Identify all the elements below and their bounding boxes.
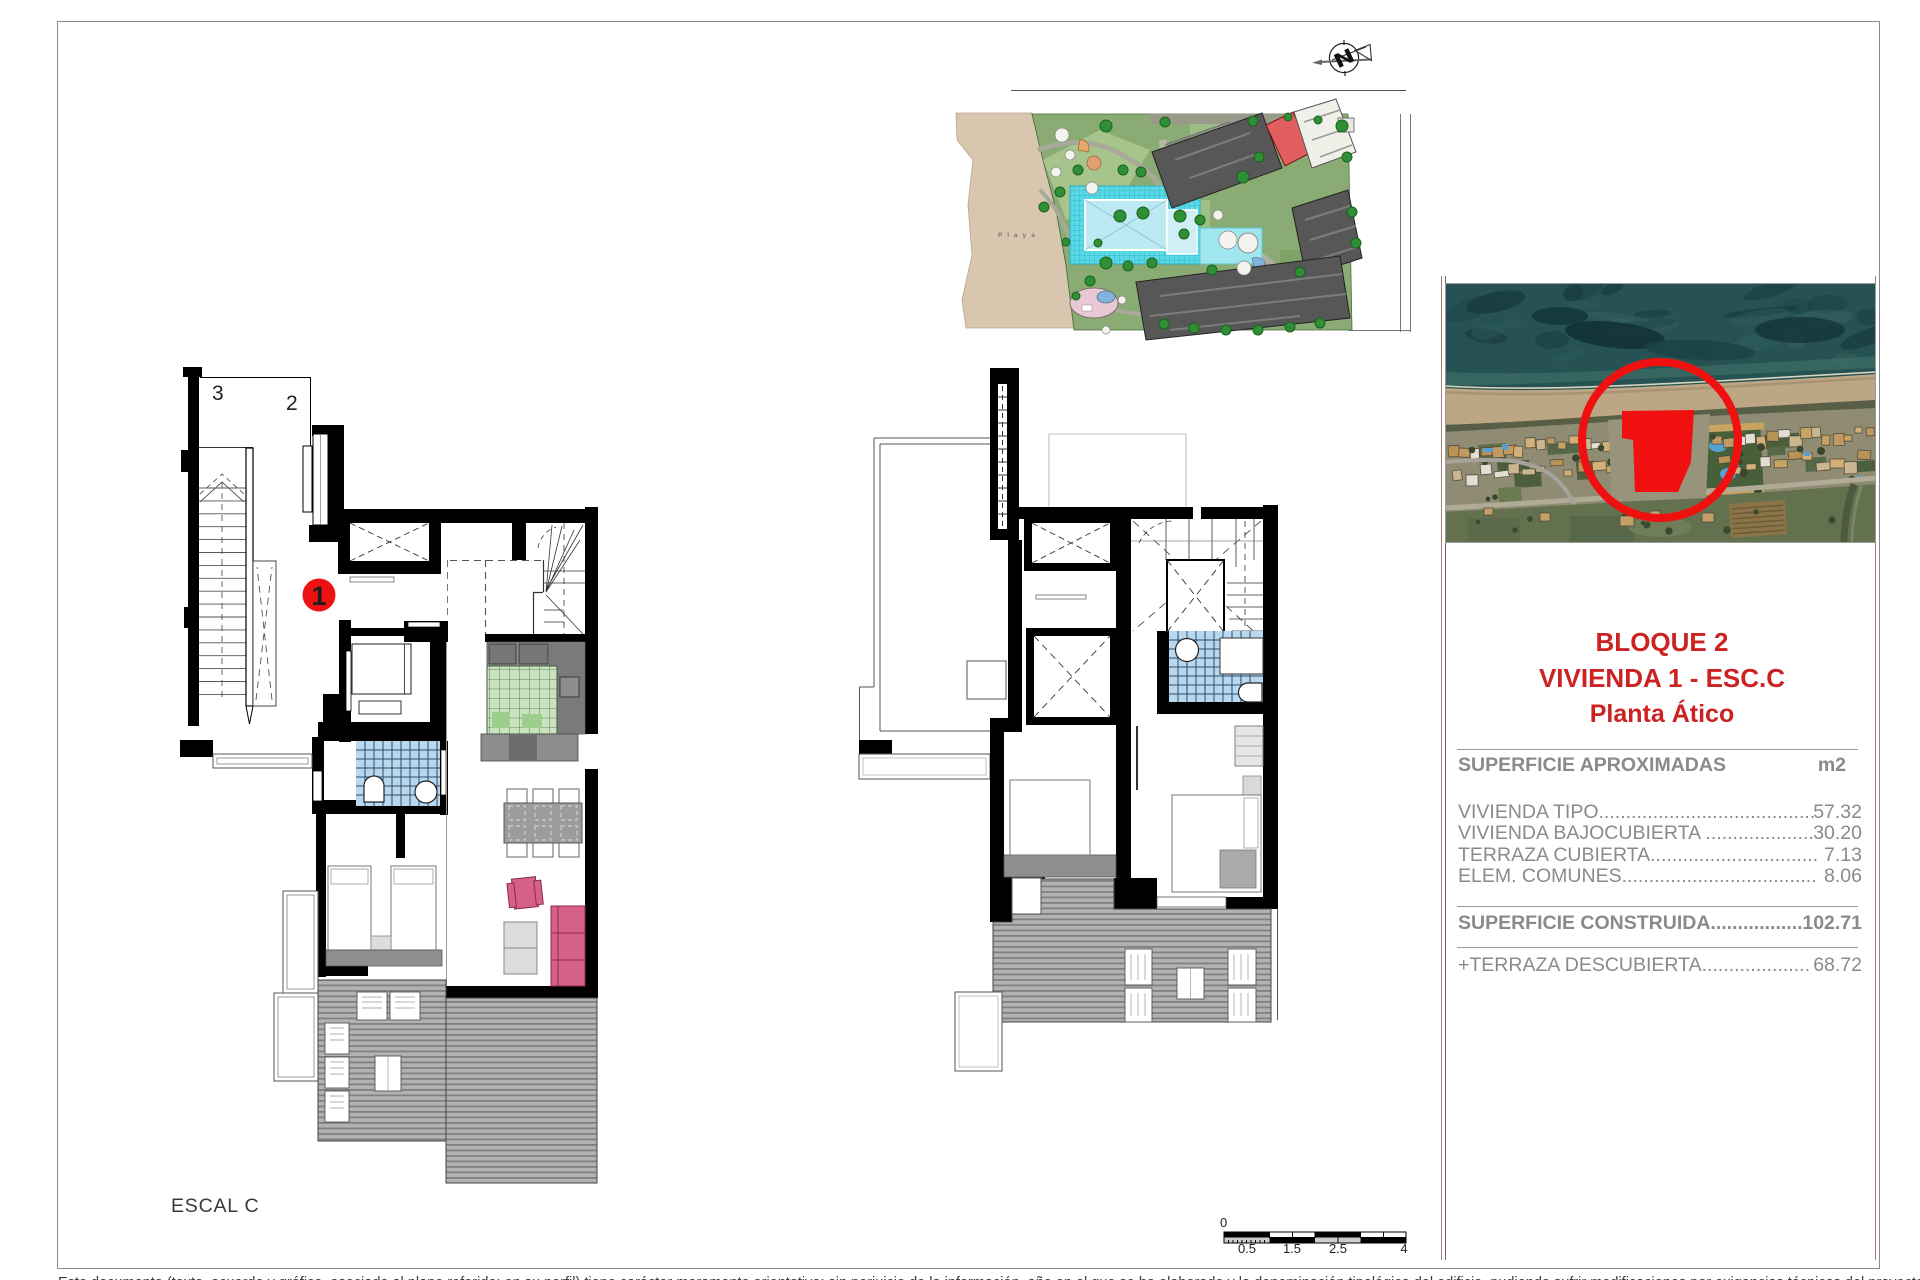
svg-text:2.5: 2.5 <box>1329 1241 1347 1256</box>
svg-text:ELEM. COMUNES.................: ELEM. COMUNES...........................… <box>1458 865 1817 887</box>
svg-text:Este documento (texto, acuerdo: Este documento (texto, acuerdo y gráfico… <box>58 1275 1920 1280</box>
svg-text:TERRAZA CUBIERTA..............: TERRAZA CUBIERTA........................… <box>1458 844 1818 866</box>
svg-text:+TERRAZA DESCUBIERTA..........: +TERRAZA DESCUBIERTA.................... <box>1458 954 1810 976</box>
svg-text:1: 1 <box>311 581 326 611</box>
svg-text:7.13: 7.13 <box>1824 844 1862 866</box>
svg-text:Planta Ático: Planta Ático <box>1590 699 1734 728</box>
svg-text:VIVIENDA BAJOCUBIERTA ........: VIVIENDA BAJOCUBIERTA ..................… <box>1458 822 1814 844</box>
svg-text:VIVIENDA 1 - ESC.C: VIVIENDA 1 - ESC.C <box>1539 663 1785 693</box>
svg-text:SUPERFICIE CONSTRUIDA.........: SUPERFICIE CONSTRUIDA................. <box>1458 912 1803 934</box>
svg-text:0.5: 0.5 <box>1238 1241 1256 1256</box>
svg-text:BLOQUE 2: BLOQUE 2 <box>1596 627 1729 657</box>
svg-text:2: 2 <box>286 392 298 415</box>
svg-text:102.71: 102.71 <box>1802 912 1862 934</box>
svg-text:P l a y a: P l a y a <box>998 232 1037 239</box>
svg-text:SUPERFICIE APROXIMADAS: SUPERFICIE APROXIMADAS <box>1458 754 1726 776</box>
svg-text:8.06: 8.06 <box>1824 865 1862 887</box>
svg-text:0: 0 <box>1220 1215 1227 1230</box>
svg-text:VIVIENDA TIPO.................: VIVIENDA TIPO...........................… <box>1458 801 1815 823</box>
svg-text:ESCAL C: ESCAL C <box>171 1195 259 1217</box>
svg-text:m2: m2 <box>1818 754 1846 776</box>
svg-text:1.5: 1.5 <box>1283 1241 1301 1256</box>
svg-text:30.20: 30.20 <box>1813 822 1862 844</box>
svg-text:68.72: 68.72 <box>1813 954 1862 976</box>
svg-text:57.32: 57.32 <box>1813 801 1862 823</box>
svg-text:4: 4 <box>1400 1241 1407 1256</box>
svg-text:3: 3 <box>212 382 224 405</box>
